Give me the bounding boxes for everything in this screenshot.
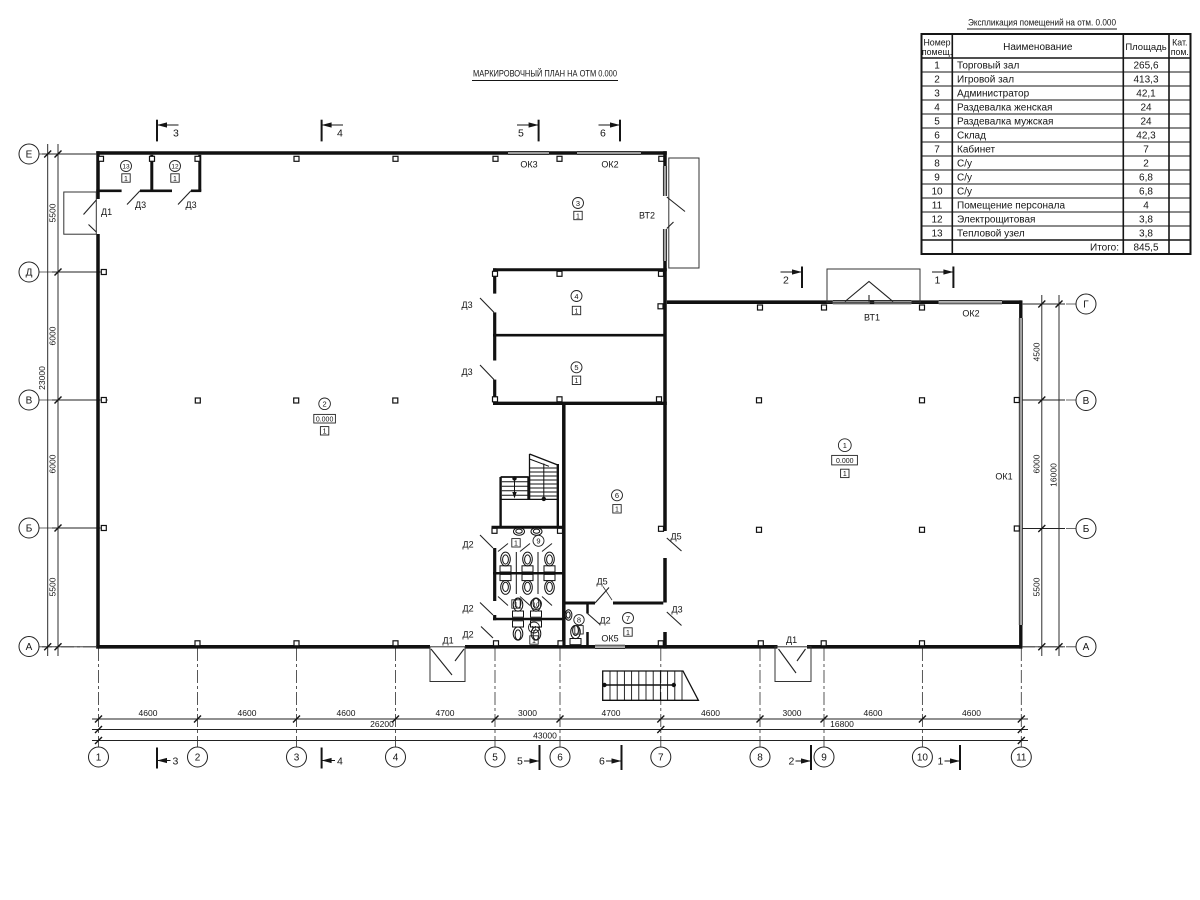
svg-text:Раздевалка мужская: Раздевалка мужская (957, 117, 1053, 128)
svg-text:1: 1 (935, 275, 941, 287)
svg-text:11: 11 (1016, 753, 1027, 764)
svg-text:10: 10 (532, 602, 540, 609)
svg-text:В: В (1083, 396, 1090, 407)
svg-text:Д1: Д1 (786, 635, 797, 645)
svg-text:Д3: Д3 (462, 367, 473, 377)
svg-text:1: 1 (575, 308, 579, 315)
svg-text:1: 1 (843, 471, 847, 478)
svg-text:Д2: Д2 (600, 616, 611, 626)
svg-text:5: 5 (934, 117, 940, 128)
svg-text:А: А (26, 642, 33, 653)
svg-text:Д2: Д2 (463, 540, 474, 550)
svg-text:1: 1 (323, 429, 327, 436)
svg-text:ОК2: ОК2 (601, 160, 618, 170)
svg-text:9: 9 (821, 753, 827, 764)
svg-text:Номер: Номер (923, 38, 950, 48)
svg-text:6000: 6000 (1031, 454, 1041, 473)
svg-text:5: 5 (492, 753, 498, 764)
svg-text:1: 1 (532, 638, 536, 645)
svg-text:4: 4 (934, 103, 940, 114)
svg-text:11: 11 (932, 201, 943, 212)
svg-text:3000: 3000 (518, 708, 537, 718)
svg-text:4: 4 (393, 753, 399, 764)
svg-text:Д5: Д5 (597, 577, 608, 587)
svg-text:6: 6 (599, 756, 605, 768)
svg-text:0.000: 0.000 (836, 458, 854, 465)
svg-text:Тепловой узел: Тепловой узел (957, 229, 1025, 240)
svg-text:Кабинет: Кабинет (957, 144, 995, 156)
svg-text:0.000: 0.000 (316, 416, 334, 423)
svg-text:Итого:: Итого: (1090, 243, 1119, 254)
svg-text:6000: 6000 (48, 454, 58, 473)
svg-text:ОК1: ОК1 (995, 472, 1012, 482)
svg-text:1: 1 (934, 61, 940, 72)
svg-text:3: 3 (173, 756, 179, 768)
svg-text:5: 5 (574, 363, 578, 372)
svg-text:12: 12 (171, 164, 179, 171)
svg-text:5500: 5500 (1031, 577, 1041, 596)
svg-text:3: 3 (576, 199, 580, 208)
svg-text:1: 1 (938, 756, 944, 768)
svg-text:МАРКИРОВОЧНЫЙ ПЛАН НА ОТМ 0.00: МАРКИРОВОЧНЫЙ ПЛАН НА ОТМ 0.000 (473, 68, 617, 79)
svg-text:Кат.: Кат. (1172, 38, 1187, 48)
svg-text:Наименование: Наименование (1003, 42, 1073, 53)
svg-text:6,8: 6,8 (1139, 187, 1153, 198)
svg-text:6: 6 (934, 131, 940, 142)
svg-text:3: 3 (934, 89, 940, 100)
svg-text:1: 1 (577, 628, 581, 635)
svg-text:4: 4 (337, 756, 343, 768)
svg-text:ВТ1: ВТ1 (864, 313, 880, 323)
svg-text:1: 1 (843, 441, 847, 450)
svg-text:С/у: С/у (957, 173, 972, 184)
svg-text:6: 6 (557, 753, 563, 764)
svg-text:3,8: 3,8 (1139, 215, 1153, 226)
svg-text:13: 13 (122, 164, 130, 171)
svg-text:3000: 3000 (783, 708, 802, 718)
svg-text:7: 7 (626, 614, 630, 623)
svg-text:пом.: пом. (1171, 47, 1189, 57)
svg-text:23000: 23000 (37, 366, 47, 390)
svg-text:помещ.: помещ. (922, 47, 952, 57)
svg-text:4600: 4600 (139, 708, 158, 718)
svg-text:Торговый зал: Торговый зал (957, 61, 1019, 72)
svg-text:Игровой зал: Игровой зал (957, 75, 1014, 86)
svg-text:9: 9 (934, 173, 940, 184)
svg-text:Д2: Д2 (463, 604, 474, 614)
svg-text:11: 11 (531, 625, 538, 632)
svg-text:1: 1 (96, 753, 102, 764)
svg-text:3: 3 (294, 753, 300, 764)
svg-text:5: 5 (518, 128, 524, 140)
svg-text:Д5: Д5 (671, 532, 682, 542)
svg-text:42,1: 42,1 (1136, 89, 1156, 100)
svg-text:1: 1 (514, 541, 518, 548)
svg-text:Администратор: Администратор (957, 89, 1030, 100)
svg-text:4600: 4600 (238, 708, 257, 718)
svg-text:4: 4 (574, 292, 578, 301)
svg-text:6: 6 (600, 128, 606, 140)
svg-text:4600: 4600 (337, 708, 356, 718)
svg-text:5: 5 (517, 756, 523, 768)
svg-text:8: 8 (577, 616, 581, 625)
svg-text:Помещение персонала: Помещение персонала (957, 201, 1065, 212)
svg-text:16000: 16000 (1049, 463, 1059, 487)
svg-text:2: 2 (934, 75, 940, 86)
svg-text:Г: Г (1083, 300, 1089, 311)
svg-text:24: 24 (1140, 103, 1152, 114)
svg-text:4700: 4700 (436, 708, 455, 718)
svg-text:43000: 43000 (533, 731, 557, 741)
svg-text:13: 13 (931, 229, 943, 240)
svg-text:Д1: Д1 (101, 207, 112, 217)
svg-text:С/у: С/у (957, 159, 972, 170)
svg-text:4600: 4600 (701, 708, 720, 718)
svg-text:4600: 4600 (864, 708, 883, 718)
svg-text:ОК2: ОК2 (962, 309, 979, 319)
svg-text:Экспликация помещений на отм.: Экспликация помещений на отм. 0.000 (968, 18, 1116, 28)
svg-text:В: В (26, 396, 33, 407)
svg-text:26200: 26200 (370, 719, 394, 729)
svg-text:4600: 4600 (962, 708, 981, 718)
svg-text:Б: Б (1083, 524, 1090, 535)
svg-text:265,6: 265,6 (1133, 61, 1158, 72)
svg-text:413,3: 413,3 (1133, 75, 1158, 86)
svg-text:Д3: Д3 (672, 605, 683, 615)
svg-text:Склад: Склад (957, 131, 986, 142)
svg-text:2: 2 (789, 756, 795, 768)
svg-text:1: 1 (124, 176, 128, 183)
svg-text:3: 3 (173, 128, 179, 140)
svg-text:9: 9 (536, 537, 540, 546)
svg-text:1: 1 (576, 213, 580, 220)
svg-text:Д3: Д3 (186, 200, 197, 210)
svg-text:2: 2 (323, 400, 327, 409)
svg-text:6,8: 6,8 (1139, 173, 1153, 184)
svg-text:6000: 6000 (48, 326, 58, 345)
svg-text:Электрощитовая: Электрощитовая (957, 215, 1035, 226)
svg-text:1: 1 (575, 378, 579, 385)
svg-text:3,8: 3,8 (1139, 229, 1153, 240)
svg-text:7: 7 (934, 145, 940, 156)
svg-text:845,5: 845,5 (1133, 243, 1158, 254)
svg-text:5500: 5500 (48, 577, 58, 596)
svg-text:Д: Д (26, 268, 33, 279)
svg-text:1: 1 (615, 507, 619, 514)
svg-text:4: 4 (337, 128, 343, 140)
svg-text:4: 4 (1143, 201, 1149, 212)
svg-text:7: 7 (658, 753, 664, 764)
svg-text:Д2: Д2 (463, 630, 474, 640)
svg-text:5500: 5500 (48, 203, 58, 222)
svg-text:А: А (1083, 642, 1090, 653)
svg-text:2: 2 (783, 275, 789, 287)
svg-text:7: 7 (1143, 145, 1149, 156)
svg-text:8: 8 (934, 159, 940, 170)
svg-text:16800: 16800 (830, 719, 854, 729)
svg-text:Д3: Д3 (135, 200, 146, 210)
svg-text:12: 12 (931, 215, 943, 226)
svg-text:ОК5: ОК5 (601, 634, 618, 644)
svg-text:1: 1 (173, 176, 177, 183)
svg-text:24: 24 (1140, 117, 1152, 128)
svg-text:6: 6 (615, 491, 619, 500)
svg-text:Раздевалка женская: Раздевалка женская (957, 103, 1052, 114)
svg-text:С/у: С/у (957, 187, 972, 198)
svg-text:ВТ2: ВТ2 (639, 211, 655, 221)
svg-text:Д1: Д1 (443, 636, 454, 646)
svg-text:10: 10 (917, 753, 929, 764)
svg-text:1: 1 (514, 602, 518, 609)
svg-text:ОК3: ОК3 (520, 160, 537, 170)
svg-text:Д3: Д3 (462, 300, 473, 310)
svg-text:2: 2 (1143, 159, 1149, 170)
svg-text:2: 2 (195, 753, 201, 764)
svg-text:8: 8 (757, 753, 763, 764)
svg-text:42,3: 42,3 (1136, 131, 1156, 142)
svg-text:4700: 4700 (602, 708, 621, 718)
svg-text:10: 10 (931, 187, 943, 198)
svg-text:Площадь: Площадь (1125, 42, 1166, 53)
svg-text:1: 1 (626, 630, 630, 637)
svg-text:Б: Б (26, 524, 33, 535)
svg-text:Е: Е (26, 150, 33, 161)
svg-text:4500: 4500 (1031, 342, 1041, 361)
